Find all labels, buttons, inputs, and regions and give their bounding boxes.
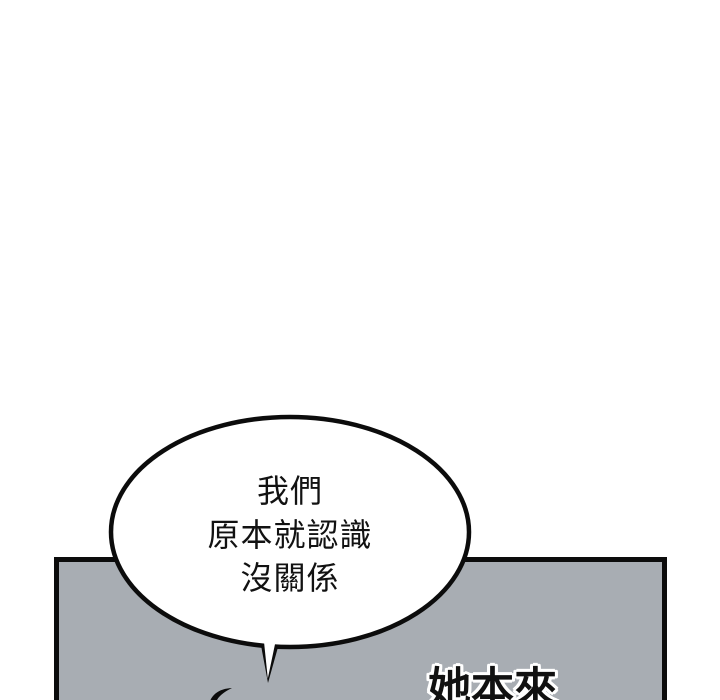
ink-stroke: [210, 688, 232, 700]
comic-page: 我們 原本就認識 沒關係 她本來: [0, 0, 720, 700]
speech-line: 沒關係: [106, 557, 474, 601]
caption-text: 她本來: [428, 668, 557, 700]
speech-line: 原本就認識: [106, 514, 474, 558]
speech-bubble-text: 我們 原本就認識 沒關係: [106, 470, 474, 601]
speech-line: 我們: [106, 470, 474, 514]
